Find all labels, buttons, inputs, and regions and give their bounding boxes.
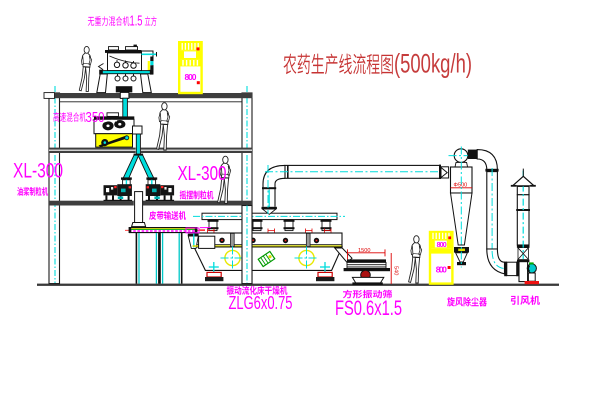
svg-text:350: 350 bbox=[86, 109, 105, 126]
svg-text:1500: 1500 bbox=[358, 248, 370, 254]
svg-text:XL-300: XL-300 bbox=[13, 159, 63, 183]
svg-text:XL-300: XL-300 bbox=[178, 163, 227, 185]
svg-text:(500kg/h): (500kg/h) bbox=[394, 49, 472, 79]
svg-text:540: 540 bbox=[393, 266, 399, 275]
svg-text:800: 800 bbox=[437, 242, 447, 249]
svg-text:ZLG6x0.75: ZLG6x0.75 bbox=[229, 293, 293, 313]
svg-text:FS0.6x1.5: FS0.6x1.5 bbox=[335, 296, 402, 320]
svg-text:800: 800 bbox=[436, 265, 447, 275]
svg-text:800: 800 bbox=[185, 72, 197, 82]
svg-text:1.5: 1.5 bbox=[130, 13, 143, 30]
